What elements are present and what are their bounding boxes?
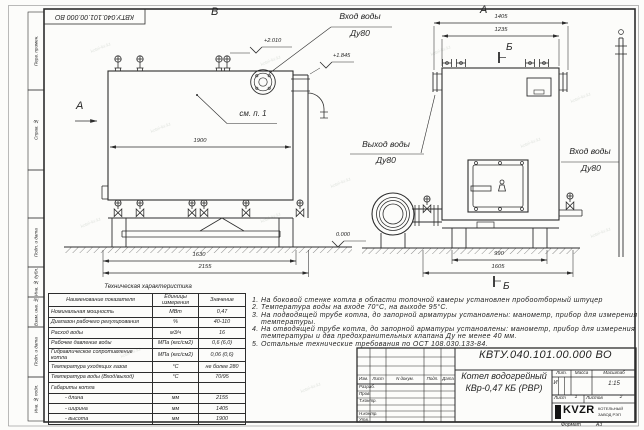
outlet-pipe [291, 75, 328, 218]
scale-label: Масштаб [592, 371, 636, 376]
table-row: - длинамм2155 [49, 393, 246, 403]
tb-header-col: Лист [370, 377, 386, 381]
inlet-right-dn: Ду80 [564, 164, 618, 173]
view-b-label: В [211, 7, 218, 18]
drawing-sheet: kotel-kv.kz kotel-kv.kz kotel-kv.kz kote… [0, 0, 644, 430]
tech-col-header: Значение [199, 294, 246, 307]
tech-table: Наименование показателя Единицы измерени… [48, 293, 246, 425]
margin-label: Подп. и дата [28, 218, 44, 267]
inlet-right-label: Вход воды [558, 147, 622, 156]
dim-1405: 1405 [481, 15, 521, 21]
lit-value: И [552, 381, 559, 387]
elevation-mark: +1.845 [333, 54, 350, 60]
tb-sig-row: Н.контр. [359, 412, 378, 416]
top-left-stamp: КВТУ.040.101.00.000 ВО [44, 9, 145, 24]
table-row: Габариты котла [49, 383, 246, 393]
mass-label: Масса [571, 371, 592, 376]
note-item: 5. Остальные технические требования по О… [252, 341, 638, 348]
kvzr-logo-sub: ЗАВОД РЭП [598, 413, 621, 417]
elevation-mark: +2.010 [264, 39, 281, 45]
furnace-door [468, 160, 528, 212]
document-name: КВр-0,47 КБ (РВР) [456, 384, 552, 393]
note-item: 3. На подводящей трубе котла, до запорно… [252, 312, 638, 327]
tb-header-col: Дата [441, 377, 455, 381]
dim-1235: 1235 [481, 28, 521, 34]
document-name: Котел водогрейный [456, 372, 552, 381]
outlet-label: Выход воды [347, 140, 425, 149]
table-row: Температура воды (Вход/выход)°С70/95 [49, 372, 246, 382]
table-row: Температура уходящих газов°Сне более 280 [49, 362, 246, 372]
inlet-riser [559, 30, 627, 257]
lit-label: Лит. [552, 371, 571, 376]
note-item: 2. Температура воды на входе 70°С, на вы… [252, 304, 638, 311]
blower-fan [372, 193, 414, 248]
margin-label: Инв. № дубл. [28, 267, 44, 297]
kvzr-logo-sub: КОТЕЛЬНЫЙ [598, 407, 623, 411]
margin-label: Перв. примен. [28, 12, 44, 90]
inspection-hatch [527, 78, 551, 96]
section-b-top-label: Б [506, 43, 513, 53]
tb-header-col: Подп. [424, 377, 441, 381]
tb-sig-row: Разраб. [359, 385, 375, 389]
view-a-arrow-label: А [76, 101, 83, 112]
tech-col-header: Единицы измерения [153, 294, 199, 307]
scale-value: 1:15 [592, 381, 636, 387]
table-row: Диапазон рабочего регулирования%40-110 [49, 317, 246, 327]
document-designation: КВТУ.040.101.00.000 ВО [457, 350, 634, 361]
tech-table-title: Техническая характеристика [70, 284, 226, 290]
note-item: 4. На отводящей трубе котла, до запорной… [252, 326, 638, 341]
dim-1900: 1900 [180, 139, 220, 145]
sheet-value: 1 [571, 396, 581, 401]
safety-port-flange [251, 70, 276, 95]
kvzr-logo-mark [555, 405, 561, 419]
dim-990: 990 [479, 252, 519, 258]
technical-notes: 1. На боковой стенке котла в области топ… [252, 297, 638, 348]
inlet-top-label: Вход воды [328, 12, 392, 21]
sheets-label: Листов [586, 396, 603, 401]
dim-1605: 1605 [478, 265, 518, 271]
tb-header-col: Изм. [357, 377, 370, 381]
tech-col-header: Наименование показателя [49, 294, 153, 307]
margin-label: Справ. № [28, 90, 44, 170]
sheets-value: 2 [614, 396, 628, 401]
see-note-label: см. п. 1 [227, 110, 279, 118]
left-view-drawing [64, 27, 392, 277]
inlet-top-dn: Ду80 [330, 29, 390, 38]
elevation-mark: 0.000 [336, 233, 350, 239]
tb-sig-row: Пров. [359, 392, 371, 396]
dim-2155: 2155 [185, 265, 225, 271]
format-value: А3 [596, 423, 602, 428]
format-label: Формат [561, 423, 581, 428]
dim-1630: 1630 [179, 253, 219, 259]
outlet-dn: Ду80 [355, 156, 417, 165]
section-b-bottom-label: Б [503, 282, 510, 292]
sheet-label: Лист [554, 396, 566, 401]
margin-label: Взам. инв. № [28, 297, 44, 327]
table-row: Гидравлическое сопротивление котлаМПа (к… [49, 348, 246, 361]
table-row: Расход водым3/ч16 [49, 328, 246, 338]
table-row: - высотамм1900 [49, 414, 246, 424]
table-row: Рабочее давление водыМПа (кгс/см2)0,6 (6… [49, 338, 246, 348]
kvzr-logo: KVZR [563, 405, 595, 416]
tb-header-col: N докум. [386, 377, 424, 381]
table-row: Номинальная мощностьМВт0,47 [49, 307, 246, 317]
tb-sig-row: Утв. [359, 418, 369, 422]
tb-sig-row: Т.контр. [359, 399, 377, 403]
table-row: - ширинамм1405 [49, 403, 246, 413]
margin-label: Подп. и дата [28, 327, 44, 377]
margin-label: Инв. № подл. [28, 377, 44, 421]
